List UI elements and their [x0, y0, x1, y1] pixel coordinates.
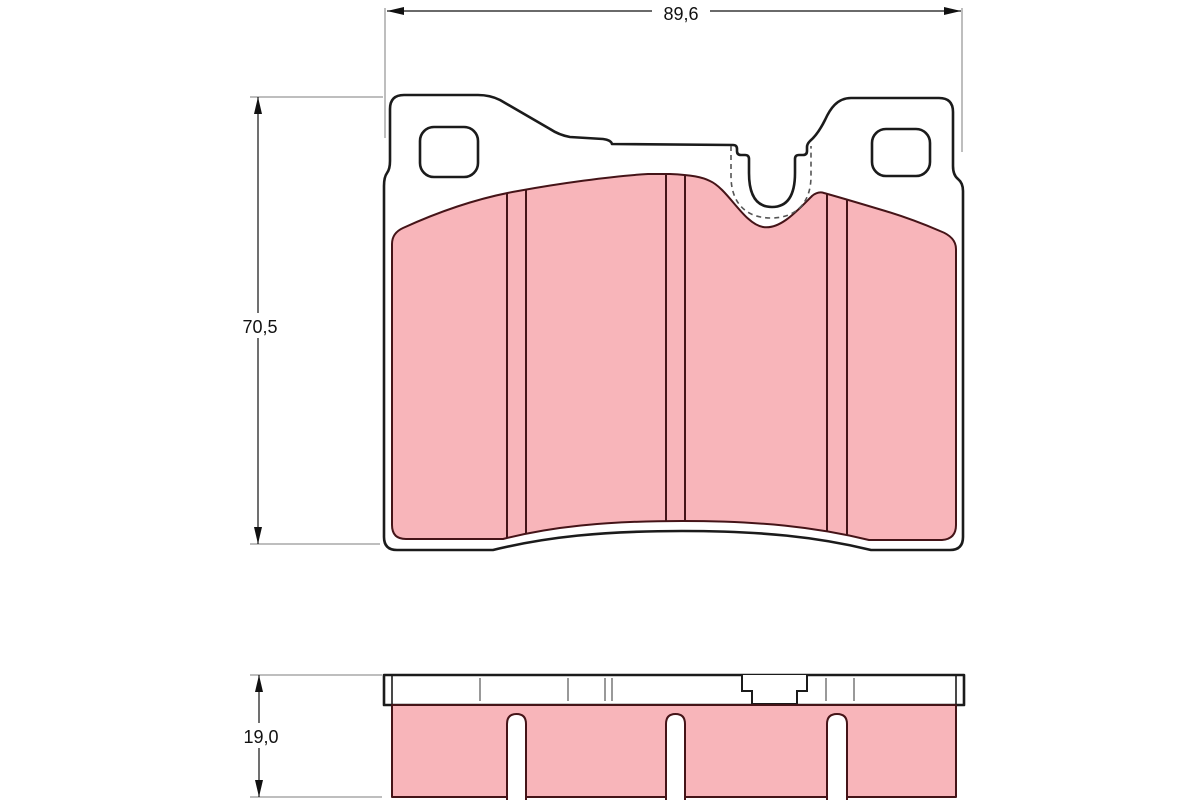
- friction-material: [392, 174, 956, 540]
- width-dimension-label: 89,6: [663, 4, 698, 24]
- mounting-hole-left: [420, 127, 478, 177]
- arrowhead-right-icon: [944, 7, 961, 15]
- arrowhead-left-icon: [387, 7, 404, 15]
- arrowhead-up-icon: [255, 675, 263, 692]
- arrowhead-down-icon: [254, 527, 262, 544]
- arrowhead-up-icon: [254, 97, 262, 114]
- friction-slot: [666, 714, 685, 800]
- thickness-dimension-label: 19,0: [243, 727, 278, 747]
- center-tab: [742, 675, 807, 704]
- dimension-height: 70,5: [232, 97, 383, 544]
- mounting-hole-right: [872, 129, 930, 176]
- side-backing-plate: [384, 675, 964, 705]
- friction-slot: [827, 714, 847, 800]
- front-view: [384, 95, 963, 550]
- side-view: [384, 675, 964, 800]
- friction-slot: [507, 714, 526, 800]
- arrowhead-down-icon: [255, 780, 263, 797]
- drawing-canvas: 89,6 70,5 19,0: [0, 0, 1200, 800]
- technical-drawing: 89,6 70,5 19,0: [0, 0, 1200, 800]
- dimension-thickness: 19,0: [233, 675, 382, 797]
- height-dimension-label: 70,5: [242, 317, 277, 337]
